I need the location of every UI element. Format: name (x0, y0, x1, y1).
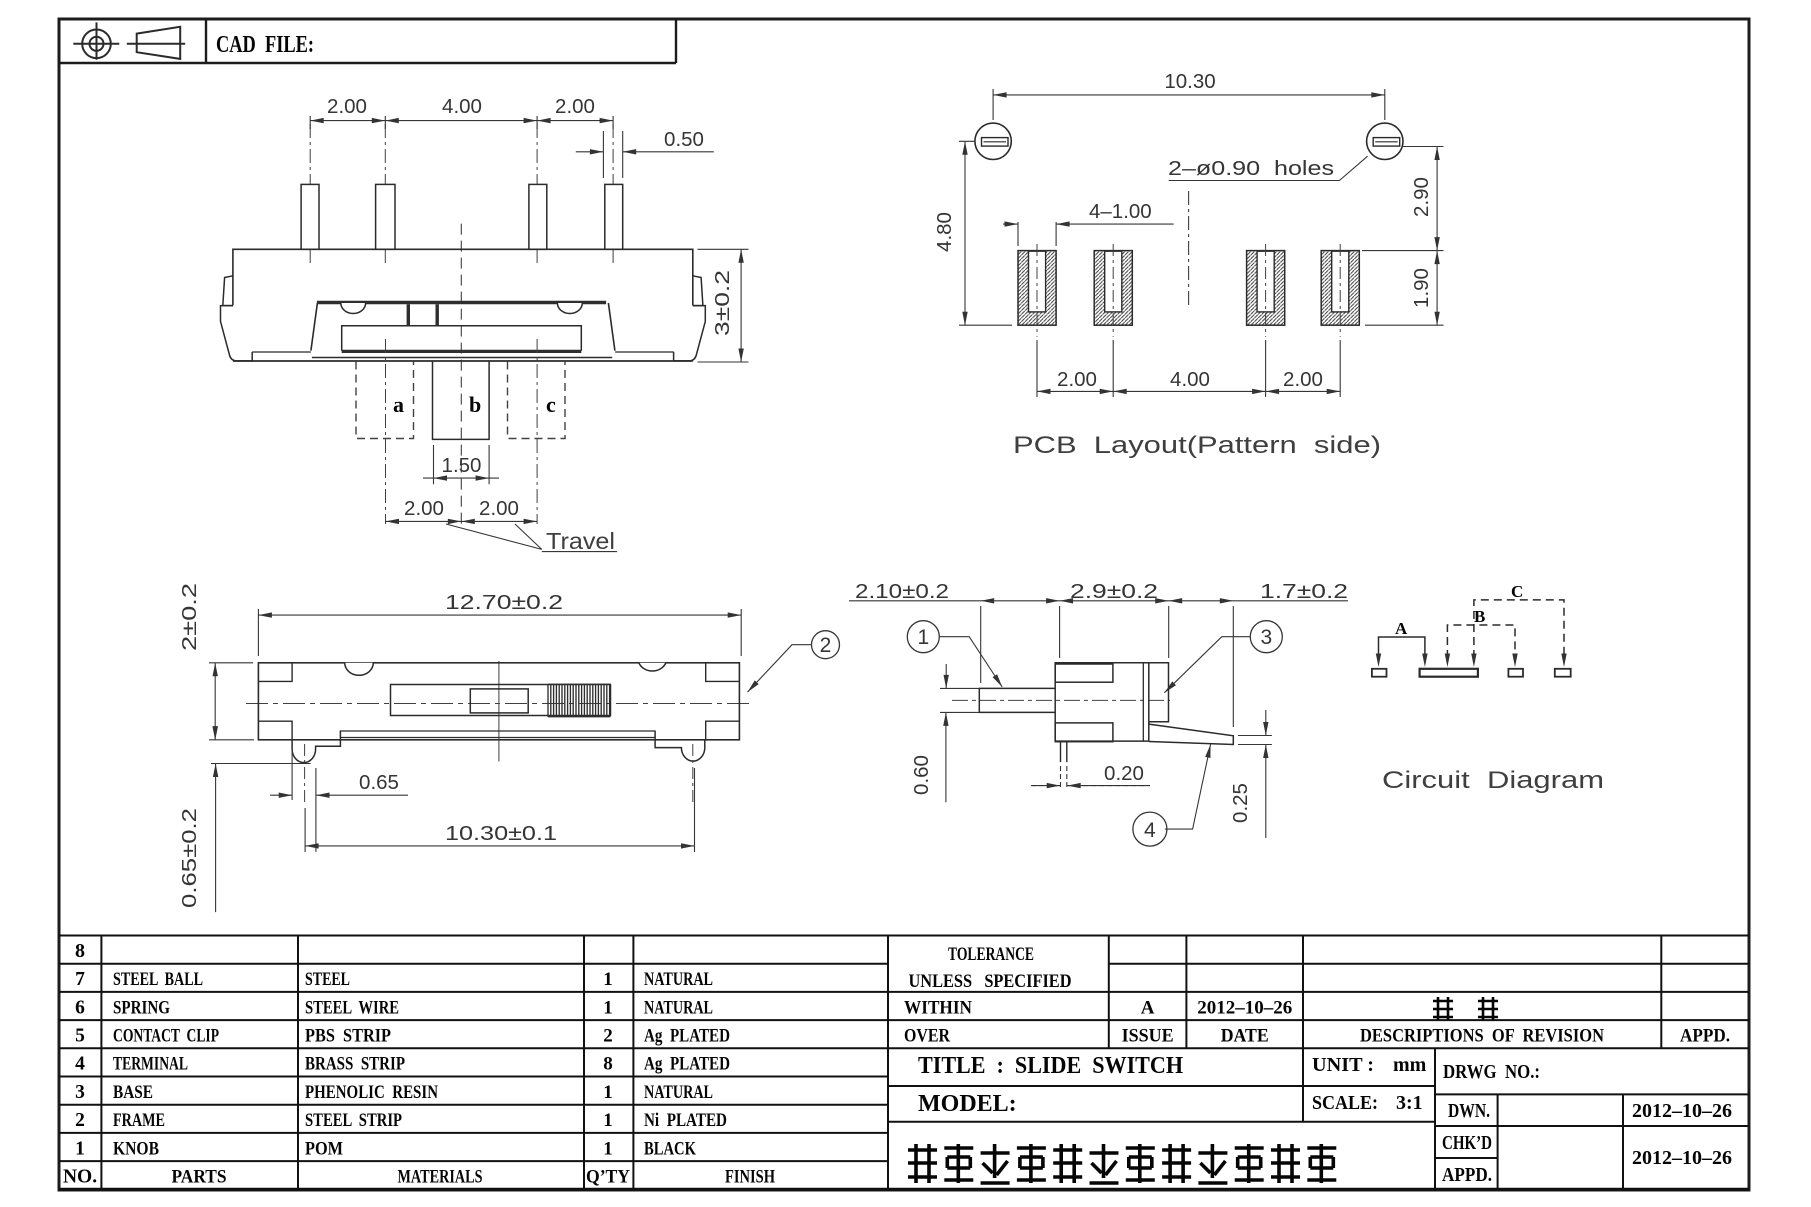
svg-text:Ag PLATED: Ag PLATED (644, 1026, 730, 1047)
svg-text:MATERIALS: MATERIALS (398, 1167, 483, 1188)
svg-text:Ni PLATED: Ni PLATED (644, 1110, 727, 1131)
svg-text:3:1: 3:1 (1396, 1092, 1423, 1114)
svg-text:2.9±0.2: 2.9±0.2 (1070, 580, 1158, 603)
svg-text:0.65±0.2: 0.65±0.2 (178, 808, 201, 908)
svg-text:2.90: 2.90 (1410, 177, 1433, 217)
svg-text:UNLESS SPECIFIED: UNLESS SPECIFIED (909, 971, 1072, 992)
svg-text:2012–10–26: 2012–10–26 (1632, 1100, 1732, 1122)
svg-text:DESCRIPTIONS OF REVISION: DESCRIPTIONS OF REVISION (1360, 1026, 1604, 1047)
svg-text:0.20: 0.20 (1104, 762, 1144, 785)
svg-text:BLACK: BLACK (644, 1139, 696, 1160)
svg-text:4.00: 4.00 (442, 95, 482, 118)
svg-text:STEEL STRIP: STEEL STRIP (305, 1110, 402, 1131)
svg-text:2.00: 2.00 (479, 497, 519, 520)
svg-text:CHK’D: CHK’D (1442, 1132, 1492, 1154)
svg-text:2±0.2: 2±0.2 (178, 583, 201, 651)
svg-text:0.25: 0.25 (1229, 783, 1252, 823)
svg-text:NATURAL: NATURAL (644, 998, 713, 1019)
svg-text:0.60: 0.60 (910, 755, 933, 795)
svg-text:SCALE:: SCALE: (1312, 1092, 1378, 1114)
svg-text:b: b (469, 392, 481, 417)
svg-text:4.00: 4.00 (1170, 368, 1210, 391)
svg-text:2.00: 2.00 (1283, 368, 1323, 391)
svg-text:TERMINAL: TERMINAL (113, 1054, 188, 1075)
svg-text:1.90: 1.90 (1410, 268, 1433, 308)
svg-text:4: 4 (75, 1054, 85, 1075)
svg-text:8: 8 (603, 1054, 613, 1075)
svg-text:STEEL WIRE: STEEL WIRE (305, 998, 399, 1019)
svg-text:2.00: 2.00 (404, 497, 444, 520)
svg-text:0.65: 0.65 (359, 771, 399, 794)
svg-text:2012–10–26: 2012–10–26 (1197, 998, 1292, 1019)
svg-text:BRASS STRIP: BRASS STRIP (305, 1054, 405, 1075)
svg-text:DATE: DATE (1221, 1026, 1269, 1047)
svg-text:APPD.: APPD. (1680, 1026, 1730, 1047)
svg-text:Q’TY: Q’TY (586, 1167, 630, 1188)
svg-text:2.00: 2.00 (555, 95, 595, 118)
svg-text:C: C (1511, 582, 1523, 601)
svg-text:1.50: 1.50 (442, 454, 482, 477)
svg-text:PBS STRIP: PBS STRIP (305, 1026, 391, 1047)
svg-text:1: 1 (603, 1110, 613, 1131)
svg-text:8: 8 (75, 940, 85, 962)
svg-text:B: B (1474, 607, 1485, 626)
svg-text:PARTS: PARTS (172, 1167, 227, 1188)
svg-text:MODEL:: MODEL: (918, 1091, 1017, 1117)
svg-text:BASE: BASE (113, 1082, 153, 1103)
svg-text:WITHIN: WITHIN (904, 998, 972, 1019)
svg-text:2: 2 (603, 1026, 613, 1047)
svg-text:4.80: 4.80 (933, 212, 956, 252)
svg-text:KNOB: KNOB (113, 1139, 159, 1160)
svg-text:5: 5 (75, 1026, 85, 1047)
svg-text:3±0.2: 3±0.2 (711, 270, 734, 336)
svg-text:1: 1 (75, 1139, 85, 1160)
svg-text:c: c (546, 392, 556, 417)
svg-text:TOLERANCE: TOLERANCE (948, 944, 1034, 965)
svg-text:1: 1 (917, 626, 929, 649)
svg-text:STEEL: STEEL (305, 969, 350, 990)
svg-text:ISSUE: ISSUE (1122, 1026, 1174, 1047)
svg-text:CONTACT CLIP: CONTACT CLIP (113, 1026, 219, 1047)
svg-text:2: 2 (820, 634, 832, 657)
svg-text:A: A (1141, 998, 1155, 1019)
svg-text:4–1.00: 4–1.00 (1089, 200, 1152, 223)
svg-text:UNIT :: UNIT : (1312, 1054, 1374, 1076)
svg-text:Ag PLATED: Ag PLATED (644, 1054, 730, 1075)
svg-text:PCB Layout(Pattern side): PCB Layout(Pattern side) (1013, 432, 1381, 459)
svg-text:2.00: 2.00 (1057, 368, 1097, 391)
svg-text:2012–10–26: 2012–10–26 (1632, 1147, 1732, 1169)
svg-text:1.7±0.2: 1.7±0.2 (1260, 580, 1348, 603)
svg-text:3: 3 (75, 1082, 85, 1103)
svg-text:mm: mm (1393, 1054, 1427, 1076)
svg-text:FINISH: FINISH (725, 1167, 775, 1188)
svg-text:POM: POM (305, 1139, 343, 1160)
svg-text:12.70±0.2: 12.70±0.2 (445, 591, 563, 614)
svg-text:STEEL BALL: STEEL BALL (113, 969, 203, 990)
svg-text:7: 7 (75, 969, 85, 990)
svg-text:CAD FILE:: CAD FILE: (216, 32, 314, 58)
svg-text:0.50: 0.50 (664, 128, 704, 151)
svg-text:10.30±0.1: 10.30±0.1 (445, 822, 557, 845)
svg-text:a: a (393, 392, 404, 417)
svg-text:DRWG NO.:: DRWG NO.: (1443, 1061, 1540, 1083)
svg-text:1: 1 (603, 969, 613, 990)
svg-text:NATURAL: NATURAL (644, 1082, 713, 1103)
svg-text:NO.: NO. (63, 1167, 97, 1188)
svg-text:2–ø0.90 holes: 2–ø0.90 holes (1168, 157, 1334, 180)
svg-text:TITLE : SLIDE SWITCH: TITLE : SLIDE SWITCH (918, 1053, 1183, 1079)
svg-text:Circuit Diagram: Circuit Diagram (1382, 767, 1604, 794)
svg-text:NATURAL: NATURAL (644, 969, 713, 990)
svg-text:PHENOLIC RESIN: PHENOLIC RESIN (305, 1082, 438, 1103)
svg-text:4: 4 (1144, 819, 1156, 842)
svg-text:1: 1 (603, 1082, 613, 1103)
svg-text:6: 6 (75, 998, 85, 1019)
svg-text:APPD.: APPD. (1442, 1164, 1492, 1186)
svg-text:2.00: 2.00 (327, 95, 367, 118)
svg-text:SPRING: SPRING (113, 998, 170, 1019)
svg-text:DWN.: DWN. (1448, 1100, 1490, 1122)
svg-text:2: 2 (75, 1110, 85, 1131)
svg-text:10.30: 10.30 (1164, 70, 1215, 93)
svg-text:3: 3 (1260, 626, 1272, 649)
svg-text:1: 1 (603, 998, 613, 1019)
svg-text:1: 1 (603, 1139, 613, 1160)
svg-text:2.10±0.2: 2.10±0.2 (855, 580, 949, 603)
svg-text:A: A (1395, 619, 1408, 638)
svg-text:OVER: OVER (904, 1026, 950, 1047)
svg-text:Travel: Travel (546, 528, 615, 554)
svg-text:FRAME: FRAME (113, 1110, 165, 1131)
